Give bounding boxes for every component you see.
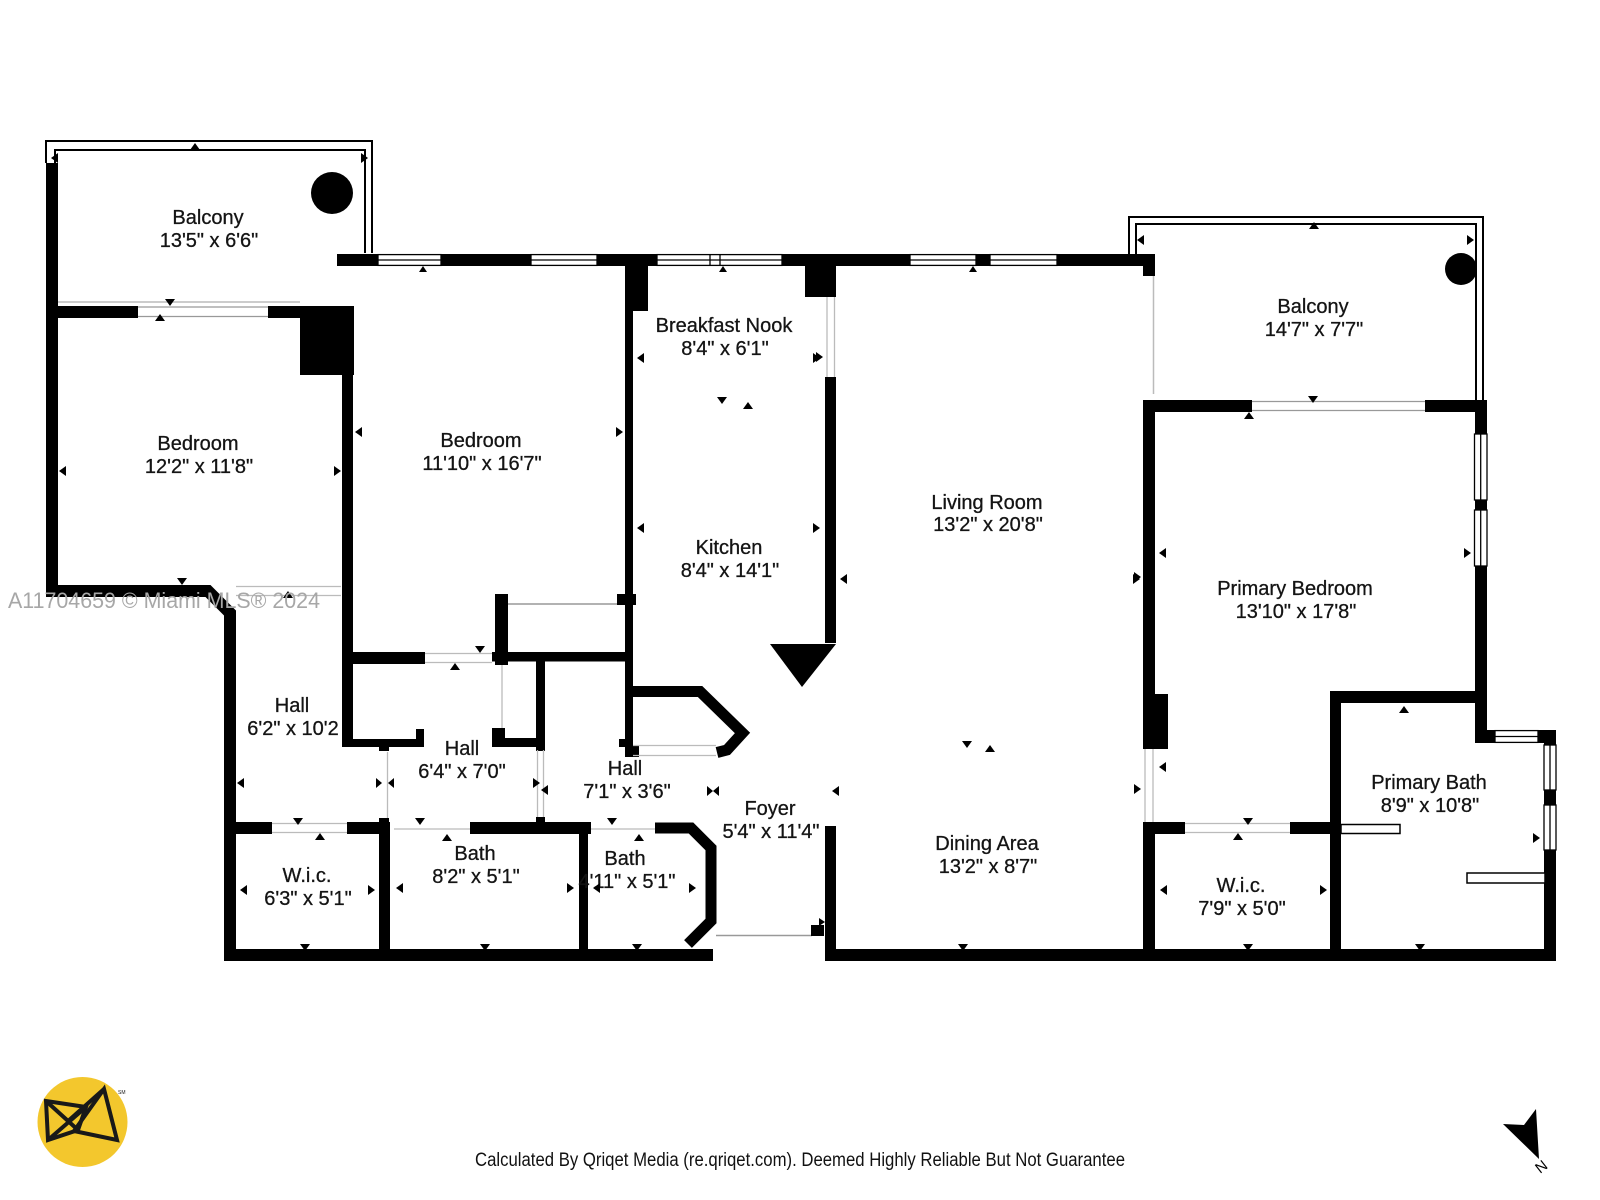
svg-text:W.i.c.: W.i.c. — [283, 865, 332, 887]
svg-text:Hall: Hall — [608, 758, 642, 780]
svg-text:Foyer: Foyer — [744, 798, 795, 820]
svg-text:11'10" x 16'7": 11'10" x 16'7" — [422, 453, 541, 475]
svg-text:Bedroom: Bedroom — [157, 433, 238, 455]
svg-text:Balcony: Balcony — [172, 207, 243, 229]
svg-text:6'4" x 7'0": 6'4" x 7'0" — [418, 761, 505, 783]
svg-text:14'7" x 7'7": 14'7" x 7'7" — [1265, 319, 1364, 341]
svg-text:7'9" x 5'0": 7'9" x 5'0" — [1198, 898, 1285, 920]
svg-text:Primary Bath: Primary Bath — [1371, 772, 1487, 794]
svg-text:A11704659 © Miami MLS® 2024: A11704659 © Miami MLS® 2024 — [8, 588, 320, 613]
svg-text:6'3" x 5'1": 6'3" x 5'1" — [264, 888, 351, 910]
svg-text:8'4" x 14'1": 8'4" x 14'1" — [681, 560, 780, 582]
svg-text:Balcony: Balcony — [1277, 296, 1348, 318]
svg-text:13'2" x 8'7": 13'2" x 8'7" — [939, 856, 1038, 878]
svg-text:SM: SM — [118, 1090, 126, 1096]
svg-text:Hall: Hall — [275, 695, 309, 717]
svg-text:Bath: Bath — [454, 843, 495, 865]
svg-text:4'11" x 5'1": 4'11" x 5'1" — [578, 871, 675, 893]
svg-text:8'2" x 5'1": 8'2" x 5'1" — [432, 866, 519, 888]
svg-text:Bedroom: Bedroom — [440, 430, 521, 452]
svg-text:5'4" x 11'4": 5'4" x 11'4" — [722, 821, 819, 843]
svg-text:12'2" x 11'8": 12'2" x 11'8" — [145, 456, 253, 478]
svg-text:Dining Area: Dining Area — [935, 833, 1039, 855]
svg-text:13'5" x 6'6": 13'5" x 6'6" — [160, 230, 259, 252]
svg-text:6'2" x 10'2: 6'2" x 10'2 — [247, 718, 338, 740]
svg-text:8'9" x 10'8": 8'9" x 10'8" — [1381, 795, 1480, 817]
svg-text:Bath: Bath — [604, 848, 645, 870]
svg-text:8'4" x 6'1": 8'4" x 6'1" — [681, 338, 768, 360]
svg-text:7'1" x 3'6": 7'1" x 3'6" — [583, 781, 670, 803]
svg-text:Living Room: Living Room — [931, 492, 1042, 514]
svg-text:Kitchen: Kitchen — [696, 537, 763, 559]
svg-text:Breakfast Nook: Breakfast Nook — [656, 315, 794, 337]
svg-text:13'10" x 17'8": 13'10" x 17'8" — [1236, 601, 1357, 623]
svg-text:Hall: Hall — [445, 738, 479, 760]
svg-text:13'2" x 20'8": 13'2" x 20'8" — [933, 514, 1043, 536]
svg-text:W.i.c.: W.i.c. — [1217, 875, 1266, 897]
svg-text:Primary Bedroom: Primary Bedroom — [1217, 578, 1373, 600]
svg-text:Calculated By Qriqet Media (re: Calculated By Qriqet Media (re.qriqet.co… — [475, 1150, 1125, 1171]
